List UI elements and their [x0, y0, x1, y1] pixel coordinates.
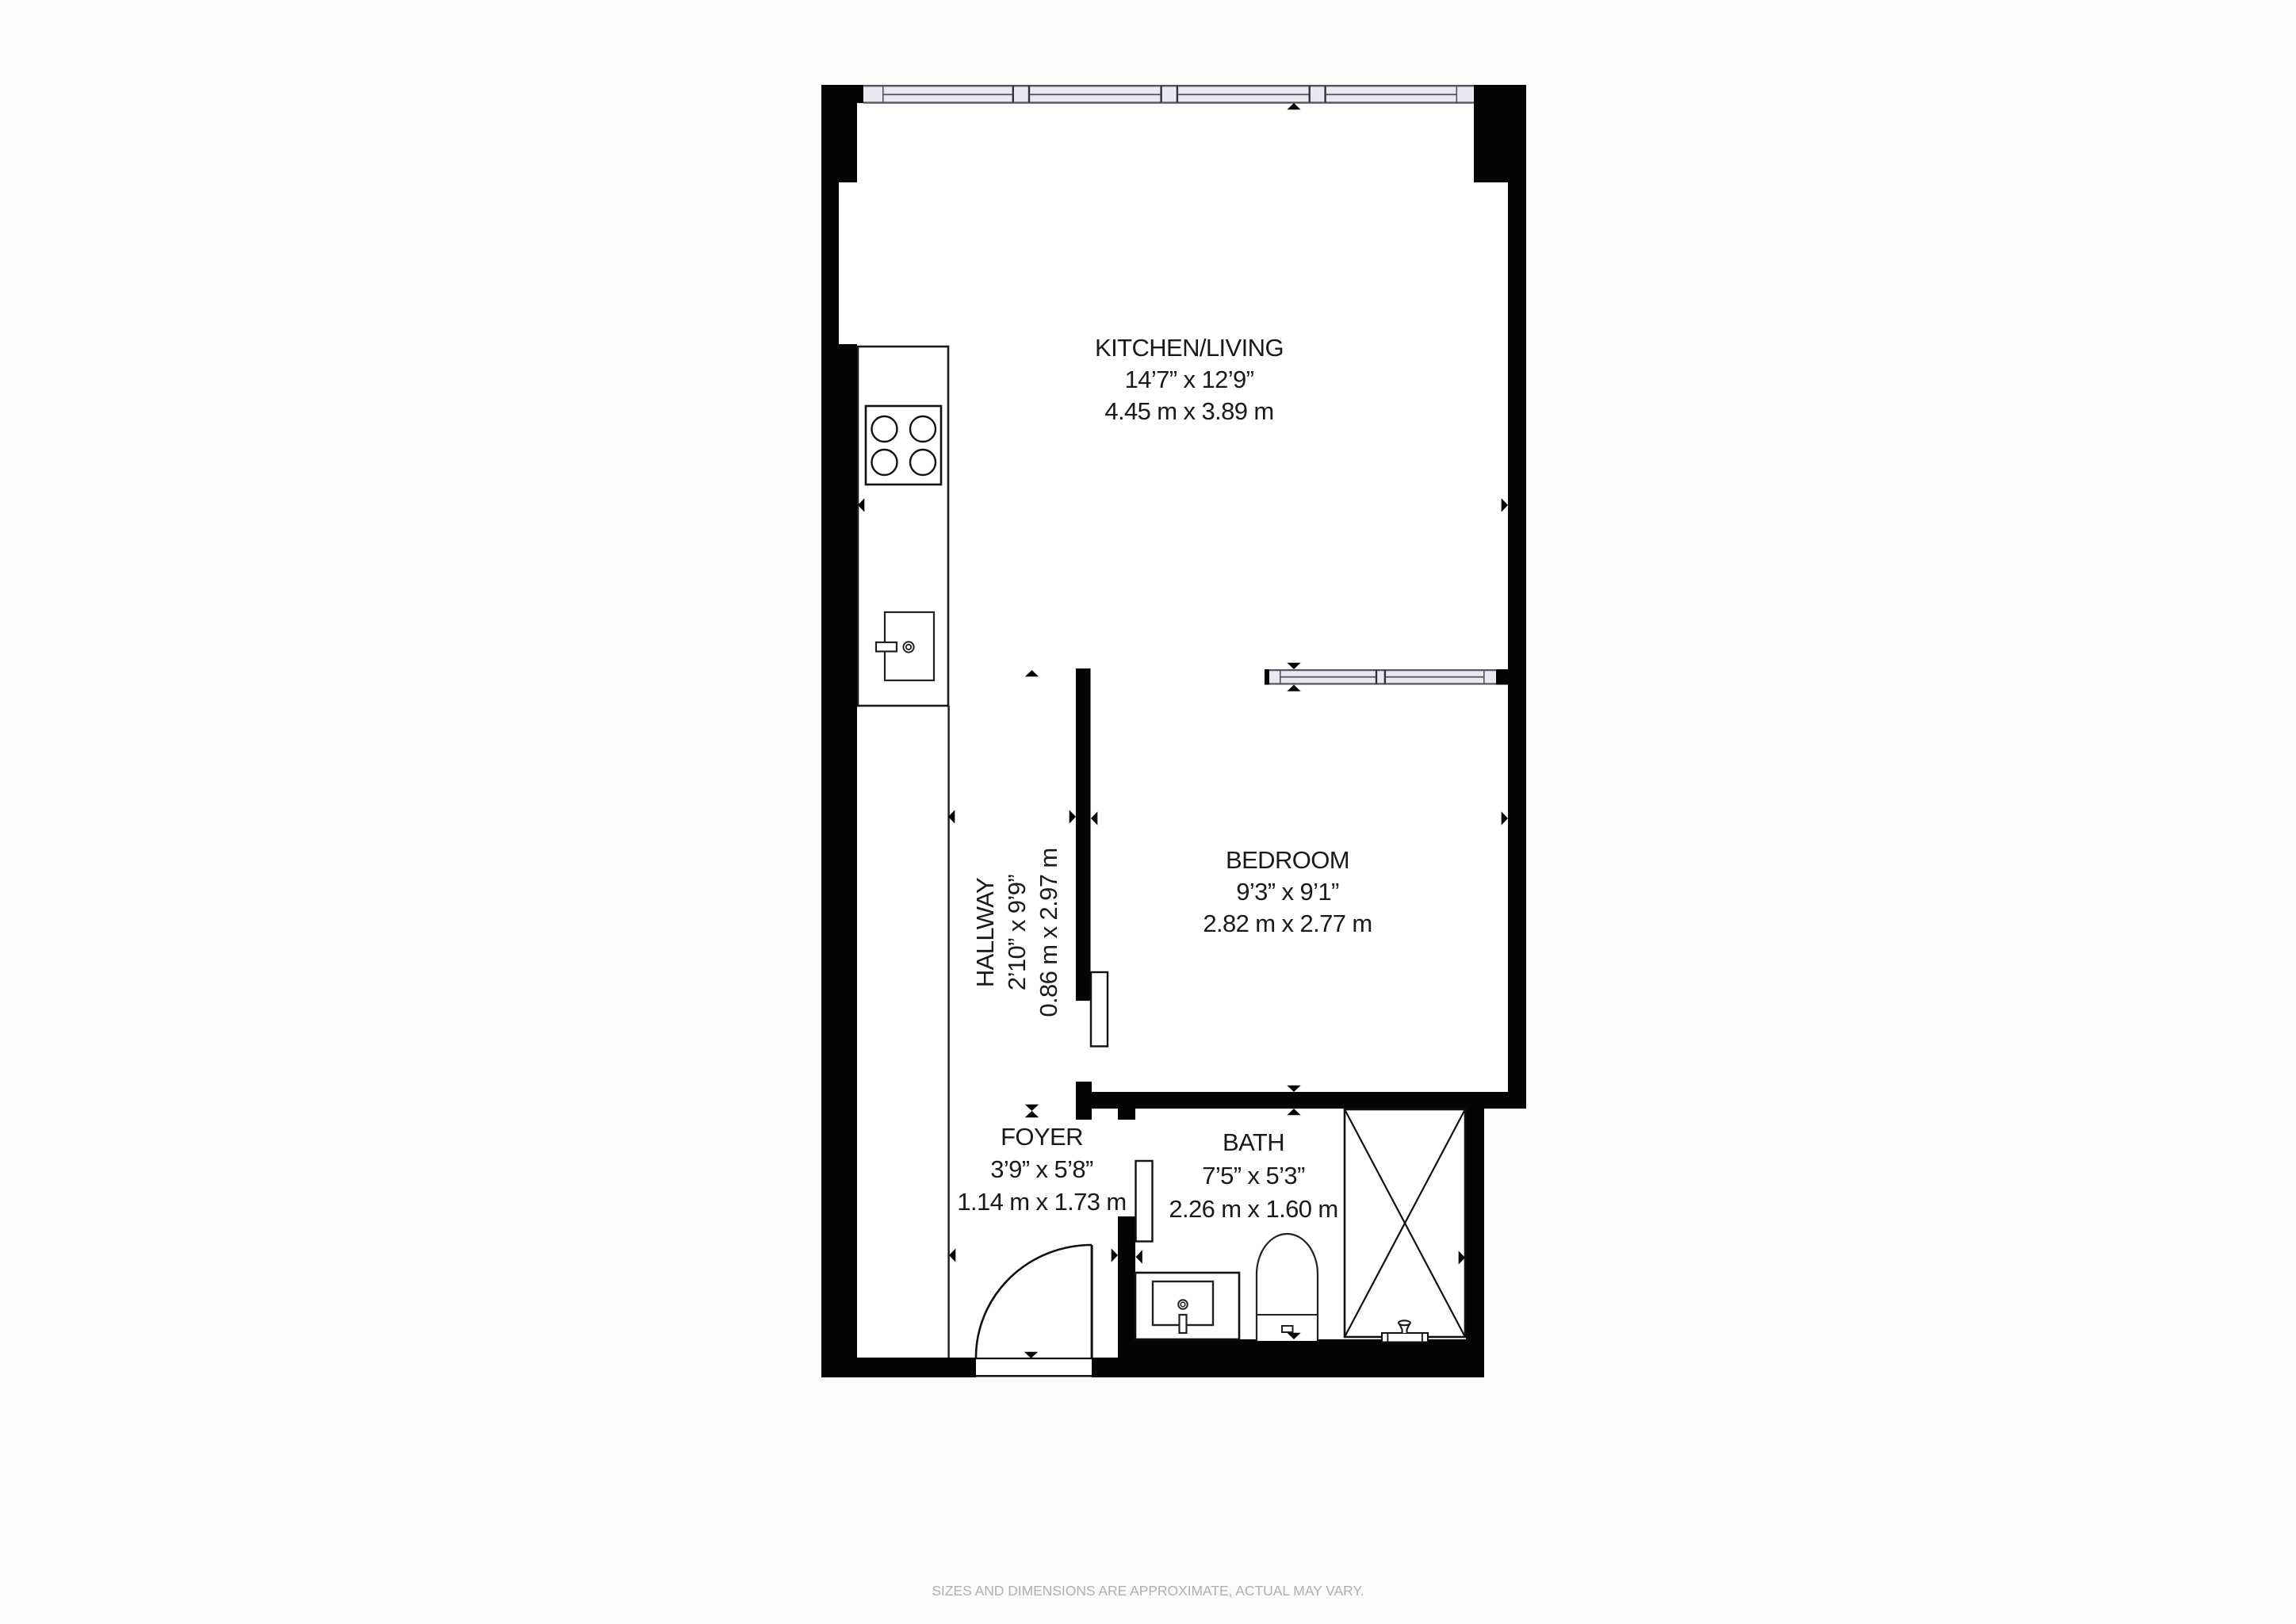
svg-text:3’9” x 5’8”: 3’9” x 5’8” [990, 1155, 1093, 1183]
svg-text:BEDROOM: BEDROOM [1226, 846, 1349, 874]
svg-text:7’5” x 5’3”: 7’5” x 5’3” [1202, 1162, 1305, 1189]
svg-text:SIZES AND DIMENSIONS ARE APPRO: SIZES AND DIMENSIONS ARE APPROXIMATE, AC… [932, 1583, 1364, 1599]
svg-text:KITCHEN/LIVING: KITCHEN/LIVING [1095, 334, 1284, 362]
svg-text:4.45 m x 3.89 m: 4.45 m x 3.89 m [1104, 397, 1273, 425]
svg-text:FOYER: FOYER [1001, 1123, 1083, 1151]
svg-text:1.14 m x 1.73 m: 1.14 m x 1.73 m [957, 1188, 1126, 1216]
svg-text:2.26 m x 1.60 m: 2.26 m x 1.60 m [1169, 1195, 1337, 1223]
svg-text:BATH: BATH [1223, 1128, 1284, 1156]
svg-text:14’7” x 12’9”: 14’7” x 12’9” [1125, 366, 1254, 393]
svg-text:2.82 m x 2.77 m: 2.82 m x 2.77 m [1203, 910, 1372, 937]
svg-text:9’3” x 9’1”: 9’3” x 9’1” [1236, 878, 1339, 906]
svg-text:0.86 m x 2.97 m: 0.86 m x 2.97 m [1035, 848, 1062, 1017]
svg-text:2’10” x 9’9”: 2’10” x 9’9” [1003, 875, 1031, 990]
svg-text:HALLWAY: HALLWAY [971, 878, 999, 987]
